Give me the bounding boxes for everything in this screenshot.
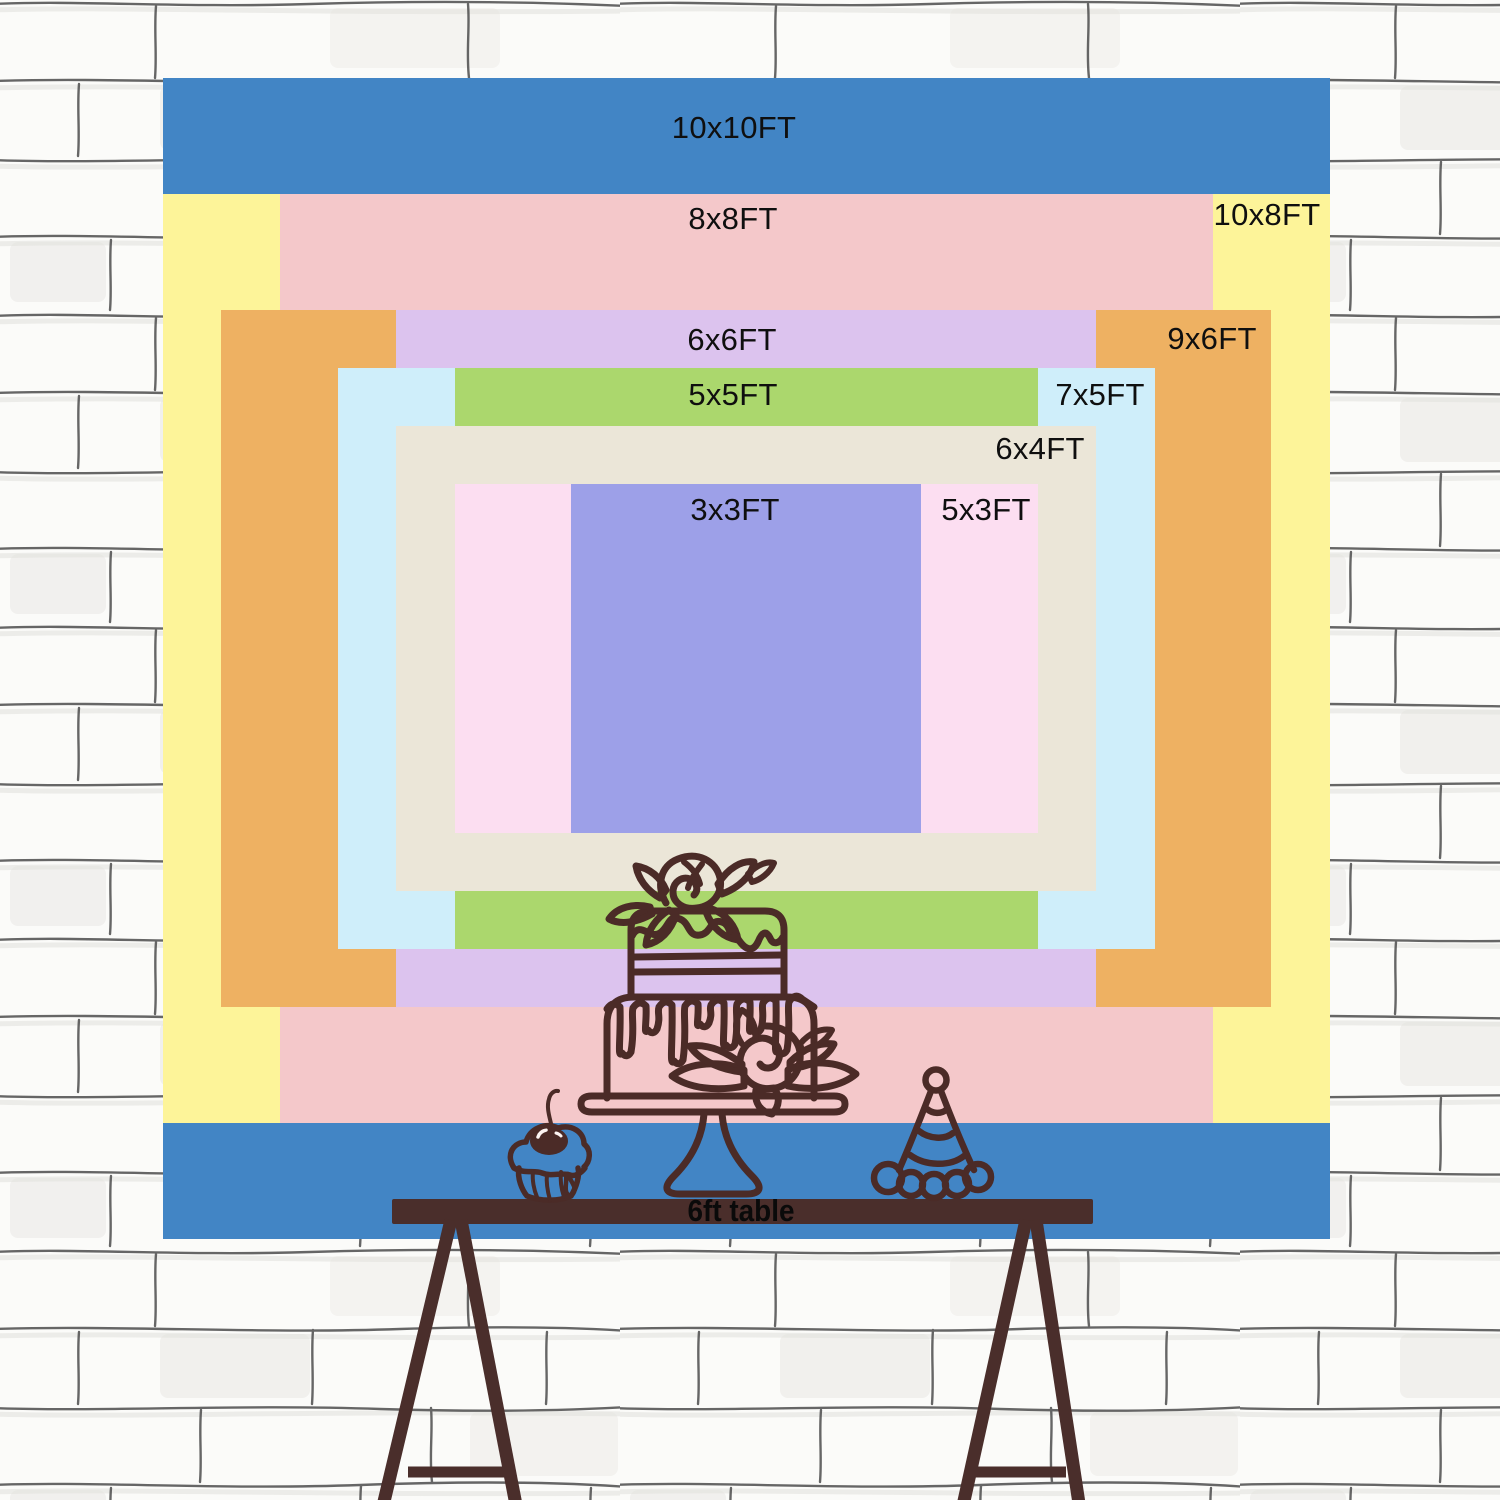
- size-label-6x6ft: 6x6FT: [687, 322, 776, 358]
- backdrop-size-chart-image: 10x10FT 8x8FT 10x8FT 6x6FT 9x6FT 5x5FT 7…: [0, 0, 1500, 1500]
- size-label-9x6ft: 9x6FT: [1167, 321, 1256, 357]
- party-hat-icon: [874, 1070, 991, 1199]
- table-icon: [382, 1199, 1093, 1500]
- size-label-10x8ft: 10x8FT: [1214, 197, 1321, 233]
- size-label-10x10ft: 10x10FT: [672, 110, 796, 146]
- size-label-8x8ft: 8x8FT: [688, 201, 777, 237]
- size-label-7x5ft: 7x5FT: [1055, 377, 1144, 413]
- cupcake-icon: [510, 1091, 589, 1200]
- size-label-5x3ft: 5x3FT: [941, 492, 1030, 528]
- size-label-6x4ft: 6x4FT: [995, 431, 1084, 467]
- size-label-3x3ft: 3x3FT: [690, 492, 779, 528]
- cake-icon: [581, 856, 856, 1194]
- size-label-5x5ft: 5x5FT: [688, 377, 777, 413]
- table-size-label: 6ft table: [688, 1193, 795, 1229]
